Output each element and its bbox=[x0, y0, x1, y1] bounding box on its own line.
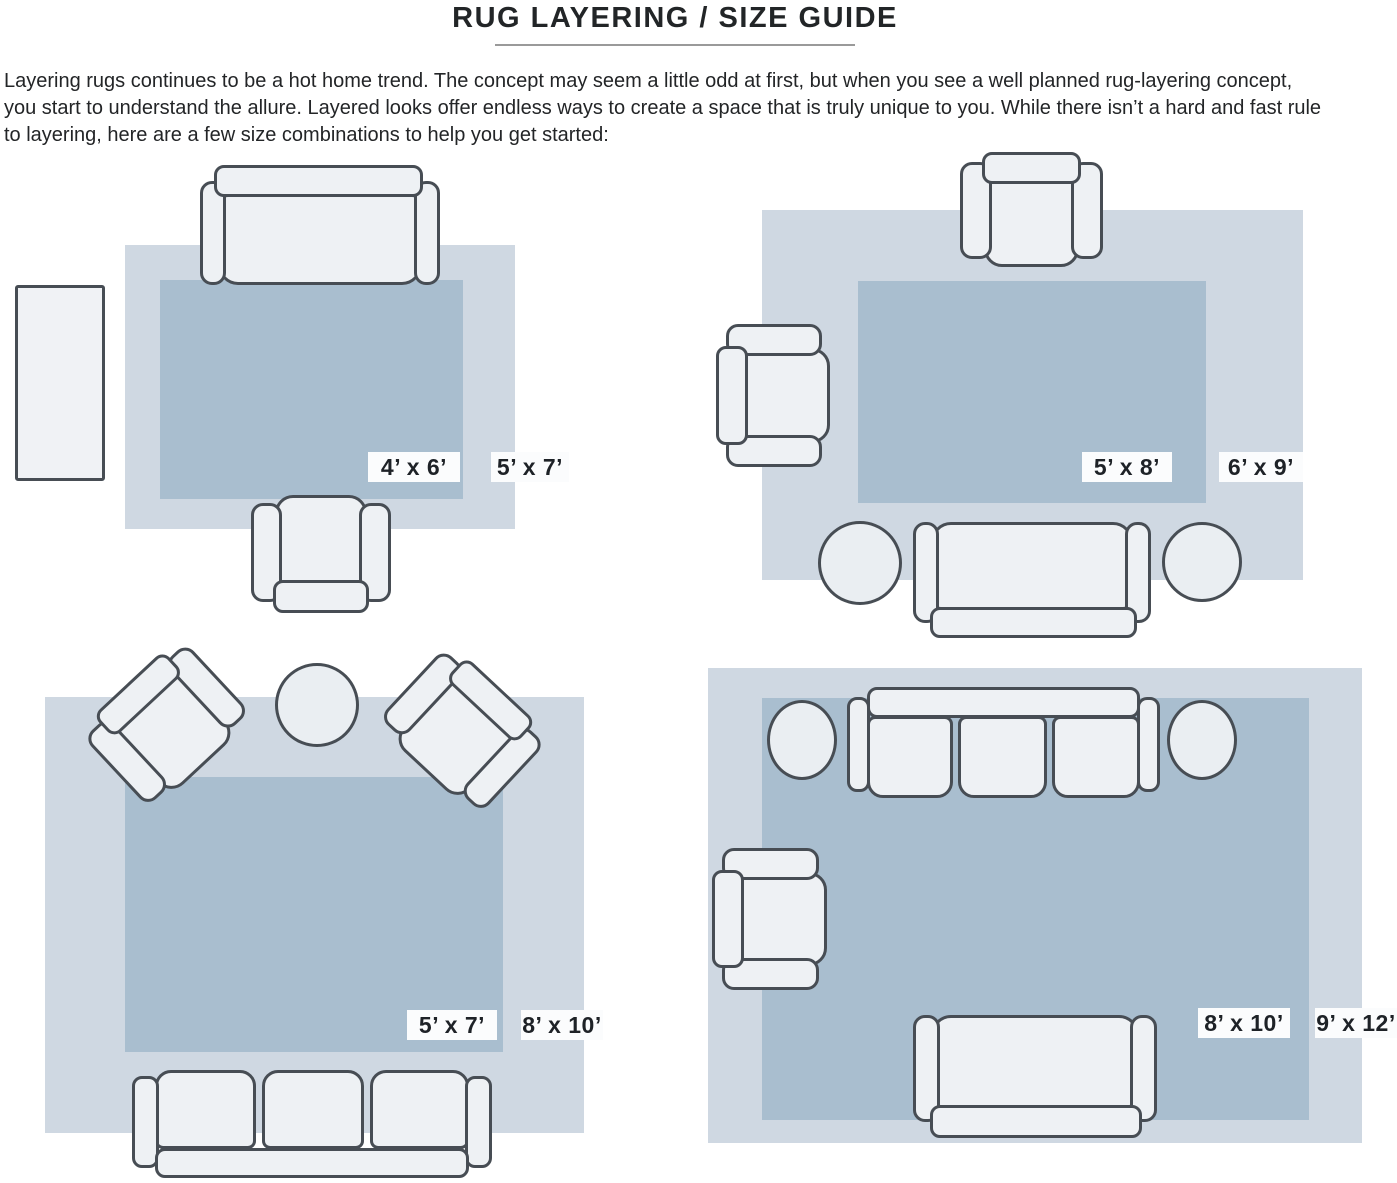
outer-rug-size-label: 5’ x 7’ bbox=[491, 452, 569, 482]
sofa-back bbox=[930, 1105, 1142, 1138]
sofa-top bbox=[200, 165, 440, 285]
sofa-cushion-1 bbox=[867, 716, 953, 797]
armchair-left bbox=[712, 848, 827, 990]
chair-back bbox=[716, 346, 748, 445]
inner-rug-size-label: 8’ x 10’ bbox=[1198, 1008, 1290, 1038]
sofa-cushion-3 bbox=[1052, 716, 1140, 797]
chair-seat bbox=[743, 348, 830, 442]
chair-back bbox=[273, 580, 370, 613]
sofa-cushion-3 bbox=[155, 1070, 256, 1149]
intro-paragraph: Layering rugs continues to be a hot home… bbox=[4, 68, 1396, 149]
chair-back bbox=[712, 870, 744, 968]
round-side-table bbox=[275, 663, 359, 747]
intro-line-1: Layering rugs continues to be a hot home… bbox=[4, 68, 1396, 95]
loveseat-bottom bbox=[913, 1015, 1157, 1138]
sofa-seat bbox=[931, 1015, 1138, 1108]
sofa-top bbox=[847, 687, 1160, 800]
sofa-back bbox=[867, 687, 1139, 718]
sofa-cushion-2 bbox=[262, 1070, 365, 1149]
armchair-left bbox=[716, 324, 830, 467]
oval-side-table-left bbox=[767, 700, 837, 780]
chair-seat bbox=[740, 872, 827, 966]
armchair-bottom bbox=[251, 495, 391, 613]
chair-seat bbox=[275, 495, 367, 585]
sofa-arm-left bbox=[465, 1076, 492, 1168]
sofa-arm-right bbox=[1137, 697, 1160, 792]
sofa-back bbox=[930, 607, 1137, 638]
sofa-cushion-1 bbox=[370, 1070, 469, 1149]
sofa-cushion-2 bbox=[958, 716, 1047, 797]
oval-side-table-right bbox=[1167, 700, 1237, 780]
title-divider bbox=[495, 44, 855, 46]
sofa-bottom bbox=[132, 1068, 492, 1178]
chair-back bbox=[982, 152, 1081, 184]
round-side-table-left bbox=[818, 521, 902, 605]
sofa-arm-right bbox=[414, 181, 440, 285]
console-table bbox=[15, 285, 105, 481]
sofa-seat bbox=[931, 522, 1133, 610]
intro-line-3: to layering, here are a few size combina… bbox=[4, 122, 1396, 149]
sofa-back bbox=[214, 165, 423, 197]
rug-size-guide-page: RUG LAYERING / SIZE GUIDE Layering rugs … bbox=[0, 0, 1397, 1183]
outer-rug-size-label: 6’ x 9’ bbox=[1219, 452, 1303, 482]
outer-rug-size-label: 8’ x 10’ bbox=[521, 1010, 603, 1040]
sofa-seat bbox=[218, 194, 422, 285]
intro-line-2: you start to understand the allure. Laye… bbox=[4, 95, 1396, 122]
round-side-table-right bbox=[1162, 522, 1242, 602]
armchair-top bbox=[960, 152, 1103, 267]
inner-rug-size-label: 5’ x 7’ bbox=[407, 1010, 497, 1040]
sofa-back bbox=[155, 1148, 468, 1178]
inner-rug-size-label: 4’ x 6’ bbox=[368, 452, 460, 482]
sofa-bottom bbox=[913, 522, 1151, 638]
inner-rug-size-label: 5’ x 8’ bbox=[1082, 452, 1172, 482]
outer-rug-size-label: 9’ x 12’ bbox=[1315, 1008, 1397, 1038]
page-title: RUG LAYERING / SIZE GUIDE bbox=[0, 2, 1350, 35]
chair-seat bbox=[984, 180, 1078, 267]
